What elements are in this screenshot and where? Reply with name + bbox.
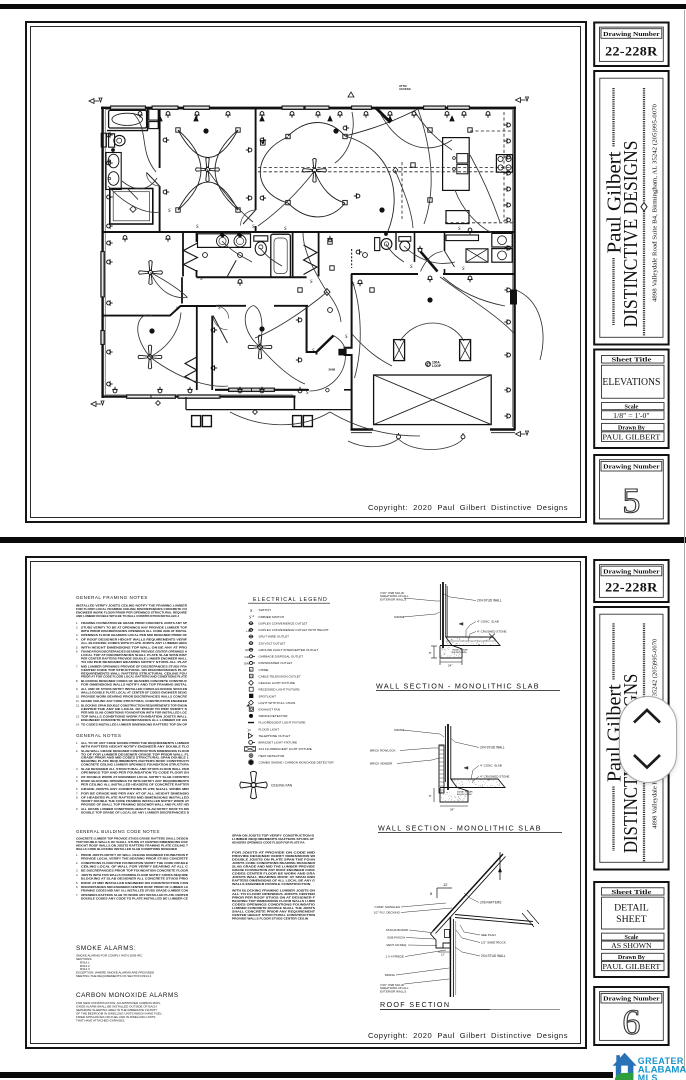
svg-text:PAUL GILBERT: PAUL GILBERT (602, 962, 660, 971)
svg-text:5: 5 (622, 481, 640, 521)
svg-text:DISTINCTIVE DESIGNS: DISTINCTIVE DESIGNS (620, 141, 642, 328)
svg-text:Scale: Scale (625, 404, 639, 411)
svg-text:DETAIL: DETAIL (614, 902, 649, 913)
svg-text:1/8" = 1'-0": 1/8" = 1'-0" (613, 411, 649, 420)
svg-text:PAUL GILBERT: PAUL GILBERT (602, 433, 660, 442)
svg-text:Drawing Number: Drawing Number (603, 464, 660, 471)
svg-text:22-228R: 22-228R (605, 581, 658, 595)
svg-text:SHEET: SHEET (616, 914, 646, 925)
svg-text:Drawn By: Drawn By (618, 954, 646, 961)
svg-text:ELEVATIONS: ELEVATIONS (602, 377, 660, 388)
svg-text:6: 6 (622, 1002, 640, 1042)
svg-text:Sheet Title: Sheet Title (611, 889, 651, 896)
svg-text:Drawn By: Drawn By (618, 424, 646, 431)
svg-text:Sheet Title: Sheet Title (611, 357, 651, 364)
svg-text:Drawing Number: Drawing Number (603, 31, 660, 38)
svg-text:Drawing Number: Drawing Number (603, 568, 660, 575)
svg-text:MLS: MLS (638, 1073, 658, 1080)
svg-text:4898 Valleydale Road Suite B4,: 4898 Valleydale Road Suite B4, Birmingha… (651, 103, 658, 302)
svg-text:AS SHOWN: AS SHOWN (611, 941, 652, 950)
svg-text:22-228R: 22-228R (605, 45, 658, 59)
